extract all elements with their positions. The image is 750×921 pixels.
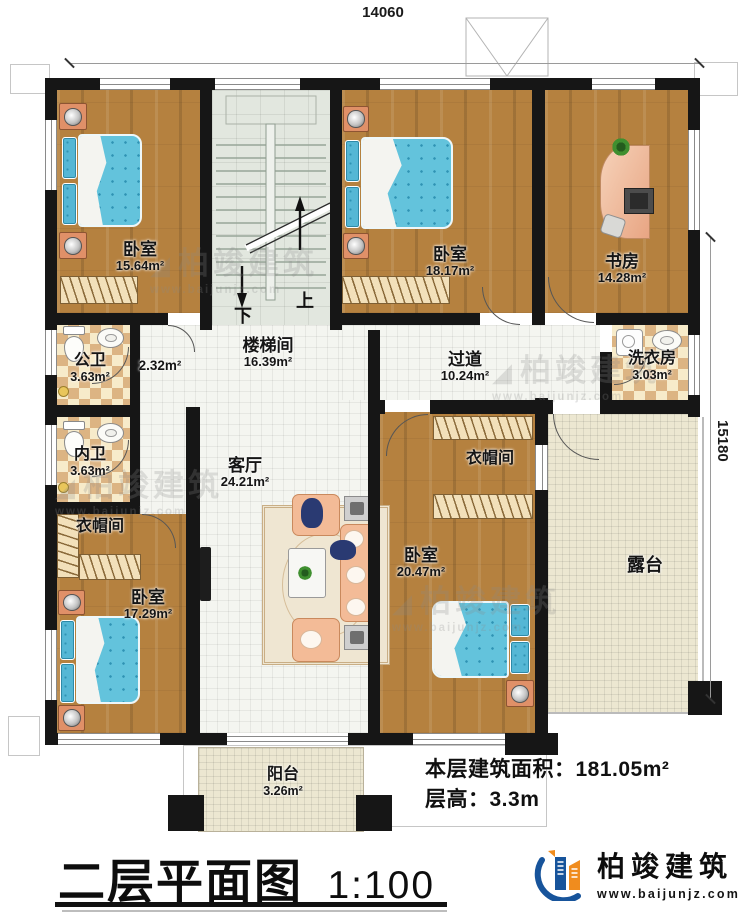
room-label-bedroom-top-left: 卧室15.64m² — [90, 240, 190, 274]
wall — [330, 78, 342, 330]
bed-pillow — [60, 620, 75, 660]
brand-logo: 柏竣建筑 www.baijunjz.com — [533, 845, 740, 901]
title-underline-shadow — [62, 910, 447, 912]
terrace-edge-line — [702, 417, 704, 714]
wall — [368, 330, 380, 733]
room-label-hallway-area: 2.32m² — [128, 358, 192, 373]
floor-area-text: 本层建筑面积：181.05m² — [425, 753, 669, 783]
wall — [330, 313, 480, 325]
room-label-terrace: 露台 — [595, 555, 695, 575]
window — [45, 630, 57, 700]
wall — [505, 733, 558, 755]
sink — [97, 328, 124, 348]
wall — [45, 502, 140, 514]
room-label-corridor: 过道10.24m² — [415, 350, 515, 384]
pillar — [688, 681, 722, 715]
room-label-laundry: 洗衣房3.03m² — [606, 350, 698, 382]
floor-plan-sheet: 14060 15180 — [0, 0, 750, 921]
sink — [652, 330, 682, 351]
nightstand — [58, 590, 85, 615]
wardrobe — [342, 276, 450, 304]
window — [413, 733, 505, 745]
bed-pillow — [345, 140, 360, 182]
room-label-closet-left: 衣帽间 — [55, 518, 145, 536]
bed-sheet — [78, 618, 138, 702]
wall — [688, 78, 700, 130]
wall — [600, 400, 695, 414]
window — [592, 78, 655, 90]
window — [100, 78, 170, 90]
bed-mattress — [432, 601, 509, 678]
nightstand — [59, 103, 87, 130]
room-label-living-room: 客厅24.21m² — [195, 456, 295, 490]
wall — [596, 313, 688, 325]
title-underline — [55, 902, 447, 907]
door-arc-bedroom-top-middle — [482, 287, 520, 325]
sofa-pillow — [300, 630, 322, 649]
right-dimension-line — [710, 238, 711, 700]
stairs-down-label: 下 — [234, 302, 252, 328]
brand-logo-icon — [533, 845, 589, 901]
window — [45, 120, 57, 190]
top-dimension-line — [70, 63, 700, 64]
bed-pillow — [62, 137, 77, 179]
side-table — [344, 625, 370, 650]
eave-box — [10, 64, 50, 94]
plant — [612, 138, 630, 156]
wall — [200, 78, 212, 330]
bed-pillow — [510, 604, 530, 637]
room-label-public-bathroom: 公卫3.63m² — [50, 352, 130, 384]
wall — [130, 417, 140, 502]
wall — [535, 398, 548, 445]
room-label-study: 书房14.28m² — [572, 252, 672, 286]
nightstand — [58, 705, 85, 731]
brand-website: www.baijunjz.com — [597, 887, 740, 901]
wall — [45, 313, 168, 325]
brand-name: 柏竣建筑 — [597, 845, 740, 885]
person — [301, 498, 323, 528]
person — [330, 540, 356, 560]
bed-pillow — [62, 183, 77, 225]
bed-sheet — [80, 136, 140, 225]
bed-pillow — [345, 186, 360, 228]
nightstand — [59, 232, 87, 259]
pillar — [168, 795, 204, 831]
window — [215, 78, 300, 90]
right-dimension-label: 15180 — [714, 420, 731, 462]
bed-sheet — [434, 603, 507, 676]
bed-mattress — [361, 137, 453, 229]
floor-height-text: 层高：3.3m — [425, 783, 539, 813]
room-label-bedroom-bottom-right: 卧室20.47m² — [371, 546, 471, 580]
bed-sheet — [363, 139, 451, 227]
floor-drain — [58, 482, 69, 493]
bed-mattress — [78, 134, 142, 227]
eave-box — [8, 716, 40, 756]
wall — [532, 78, 545, 325]
room-label-balcony: 阳台3.26m² — [233, 766, 333, 798]
roof-skylight — [464, 16, 550, 78]
pillar — [356, 795, 392, 831]
closet-rack — [433, 494, 533, 519]
balcony-sliding-door — [227, 736, 348, 742]
wall — [688, 230, 700, 335]
stairs-up-label: 上 — [296, 287, 314, 313]
wall — [368, 400, 385, 414]
bed-pillow — [510, 641, 530, 674]
top-dimension-label: 14060 — [328, 4, 438, 21]
room-label-closet-right: 衣帽间 — [440, 450, 540, 468]
tv — [200, 547, 211, 601]
computer-monitor — [624, 188, 654, 214]
window — [688, 130, 700, 230]
room-label-private-bathroom: 内卫3.63m² — [50, 446, 130, 478]
wall — [348, 733, 413, 745]
wall — [45, 190, 57, 330]
window — [58, 733, 160, 745]
wardrobe — [60, 276, 138, 304]
bed-mattress — [76, 616, 140, 704]
sofa-pillow — [346, 566, 366, 584]
room-label-bedroom-bottom-left: 卧室17.29m² — [98, 588, 198, 622]
bed-pillow — [60, 663, 75, 703]
nightstand — [343, 106, 369, 132]
wall — [160, 733, 227, 745]
sofa-pillow — [346, 598, 366, 616]
nightstand — [506, 680, 534, 707]
nightstand — [343, 233, 369, 259]
toilet — [63, 421, 85, 430]
closet-rack — [433, 416, 533, 440]
room-label-bedroom-top-middle: 卧室18.17m² — [400, 245, 500, 279]
wall — [535, 490, 548, 733]
room-label-stairwell: 楼梯间16.39m² — [210, 336, 326, 370]
closet-rack — [79, 554, 141, 580]
wall — [45, 78, 57, 120]
terrace-edge-line — [548, 712, 710, 714]
toilet — [63, 326, 85, 335]
eave-box — [694, 62, 738, 96]
wall — [45, 405, 140, 417]
floor-drain — [58, 386, 69, 397]
wall — [45, 733, 58, 745]
side-table — [344, 496, 370, 521]
window — [380, 78, 490, 90]
flowers — [298, 566, 312, 580]
